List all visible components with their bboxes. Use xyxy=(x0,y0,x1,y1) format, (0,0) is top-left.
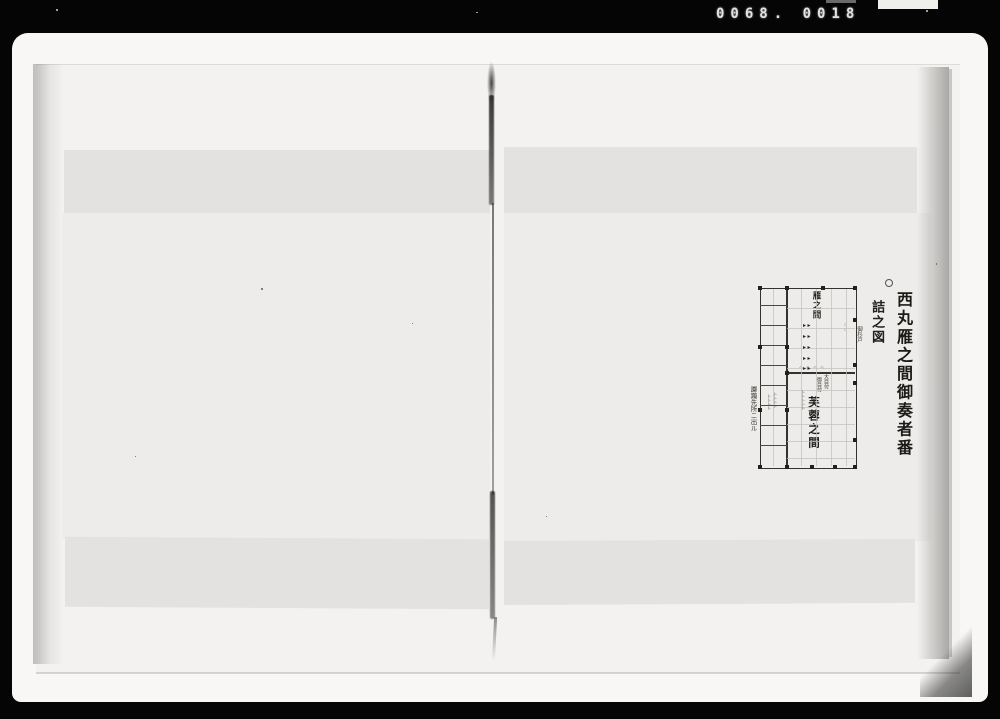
corridor-tatami-line xyxy=(760,425,787,426)
title-marker-circle xyxy=(885,279,893,287)
pillar-dot xyxy=(853,318,857,322)
dust-speck xyxy=(56,9,58,11)
paper-speck xyxy=(936,263,937,265)
tatami-gridline xyxy=(773,289,774,466)
tatami-gridline xyxy=(816,289,817,466)
corner-shadow xyxy=(920,625,972,697)
pillar-dot xyxy=(821,286,825,290)
pillar-dot xyxy=(758,345,762,349)
board-edge xyxy=(36,672,960,673)
pillar-dot xyxy=(785,286,789,290)
tatami-gridline xyxy=(787,424,855,425)
photograph: 西丸雁之間御奏者番 詰之図 雁之間 芙蓉之間 大目付 御目付 御杉戸 躑躅先所ニ… xyxy=(12,33,988,702)
corridor-tatami-line xyxy=(760,325,787,326)
tick-marks-column: 卜卜卜卜卜 xyxy=(801,390,805,410)
tatami-gridline xyxy=(787,308,855,309)
right-page-curl-shadow xyxy=(917,67,949,659)
pillar-dot xyxy=(785,465,789,469)
document-title: 西丸雁之間御奏者番 xyxy=(891,291,915,458)
spine-shadow xyxy=(489,95,494,205)
right-page-bottom-edge xyxy=(504,539,915,605)
pillar-dot xyxy=(853,465,857,469)
pillar-dot xyxy=(758,465,762,469)
pillar-dot xyxy=(853,381,857,385)
pillar-dot xyxy=(758,408,762,412)
paper-speck xyxy=(546,516,547,517)
seat-marks-row: ▸▸ xyxy=(803,333,812,340)
pillar-dot xyxy=(785,408,789,412)
corridor-tatami-line xyxy=(760,345,787,346)
annotation-left: 躑躅先所ニ出ル xyxy=(748,386,758,432)
tatami-gridline xyxy=(787,407,855,408)
seat-marks-row: ▸▸ xyxy=(803,355,812,362)
tick-marks-column: 卜卜卜卜 xyxy=(773,392,777,408)
paper-speck xyxy=(412,323,413,324)
plan-room-divider xyxy=(787,372,855,374)
left-gutter-shadow xyxy=(33,64,63,664)
annotation-right: 御杉戸 xyxy=(855,326,863,343)
frame-counter: 0068. 0018 xyxy=(716,6,860,22)
right-page-under-edge xyxy=(504,147,917,214)
left-page-bottom-edge xyxy=(65,537,489,610)
tatami-gridline xyxy=(846,289,847,466)
tatami-gridline xyxy=(787,348,855,349)
spine-shadow xyxy=(490,491,495,619)
corridor-tatami-line xyxy=(760,365,787,366)
pillar-dot xyxy=(758,286,762,290)
floor-plan-diagram: 雁之間 芙蓉之間 大目付 御目付 御杉戸 躑躅先所ニ出ル へへへへ くく ▸▸▸… xyxy=(748,278,870,478)
left-page-under-edge xyxy=(64,150,490,214)
tatami-gridline xyxy=(787,390,855,391)
right-edge-line xyxy=(949,69,952,657)
dust-speck xyxy=(476,12,478,13)
microfilm-frame: 0068. 0018 西丸雁之間御奏者番 詰之図 xyxy=(0,0,1000,719)
tatami-gridline xyxy=(787,458,855,459)
film-notch-small xyxy=(826,0,856,3)
tick-marks-column: 卜卜卜卜 xyxy=(767,394,771,410)
paper-speck xyxy=(135,456,136,457)
pillar-dot xyxy=(785,371,789,375)
tatami-gridline xyxy=(801,289,802,466)
corridor-tatami-line xyxy=(760,445,787,446)
tatami-gridline xyxy=(787,441,855,442)
pillar-dot xyxy=(833,465,837,469)
seat-marks-row: ▸▸ xyxy=(803,344,812,351)
tatami-gridline xyxy=(787,328,855,329)
tatami-gridline xyxy=(831,289,832,466)
pillar-dot xyxy=(810,465,814,469)
seat-marks-row: ▸▸ xyxy=(803,322,812,329)
pillar-dot xyxy=(853,286,857,290)
spine-shadow xyxy=(492,203,494,495)
dust-speck xyxy=(926,10,928,12)
pillar-dot xyxy=(853,363,857,367)
corridor-tatami-line xyxy=(760,305,787,306)
paper-speck xyxy=(261,288,263,290)
label-ometsuke: 大目付 xyxy=(823,374,830,389)
film-notch xyxy=(878,0,938,9)
corridor-tatami-line xyxy=(760,385,787,386)
left-page xyxy=(62,213,490,539)
seat-marks-row: ▸▸ xyxy=(803,365,812,372)
tatami-gridline xyxy=(787,368,855,369)
pillar-dot xyxy=(853,438,857,442)
pillar-dot xyxy=(785,345,789,349)
